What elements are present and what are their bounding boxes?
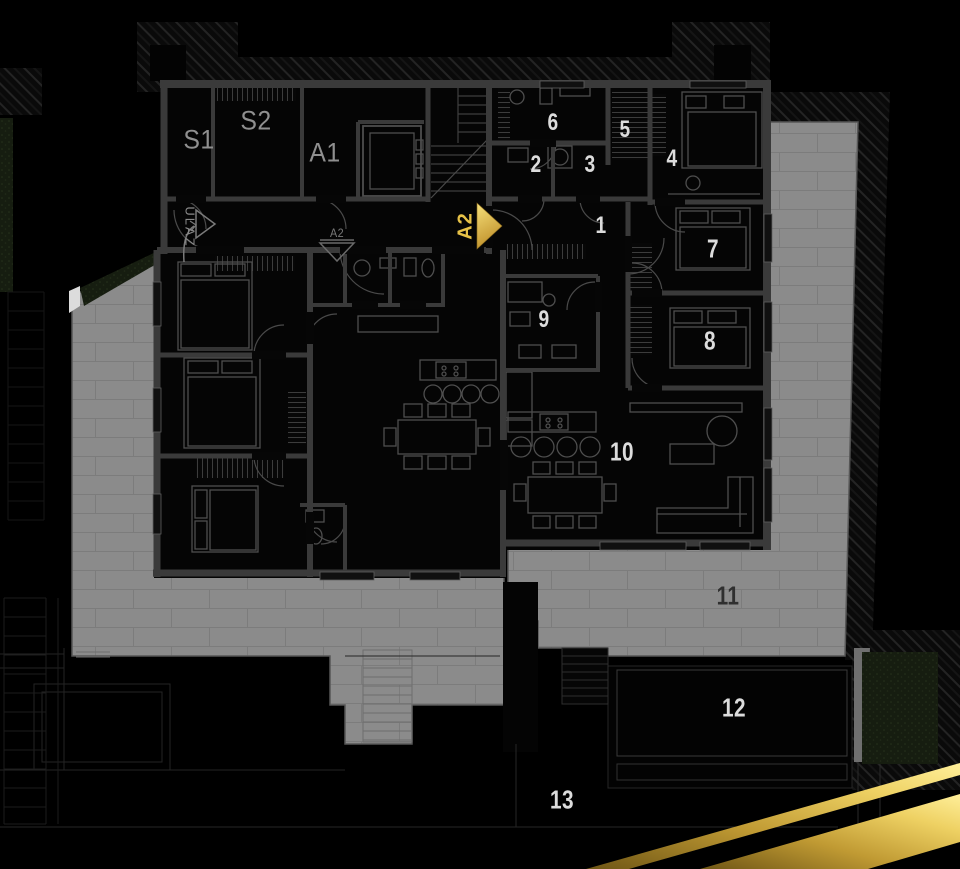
room-number-6: 6 <box>547 109 558 137</box>
greenery-box <box>862 652 938 764</box>
room-number-10: 10 <box>610 437 634 468</box>
room-number-5: 5 <box>619 116 630 144</box>
room-number-11: 11 <box>717 581 740 612</box>
room-number-2: 2 <box>530 151 541 179</box>
terrace-cut <box>503 582 538 752</box>
room-number-4: 4 <box>666 145 677 173</box>
room-number-7: 7 <box>707 234 719 265</box>
entrance-label: ULAZ <box>183 206 198 247</box>
storage-label-s2: S2 <box>240 106 271 137</box>
room-number-3: 3 <box>584 151 595 179</box>
floor-plan-page: S1 S2 A1 ULAZ A2 A2 1 2 3 4 5 6 7 8 9 10… <box>0 0 960 869</box>
storage-label-s1: S1 <box>183 125 214 156</box>
unit-label-a1: A1 <box>309 138 340 169</box>
unit-a2-marker-label[interactable]: A2 <box>455 212 478 240</box>
room-number-12: 12 <box>722 693 746 724</box>
room-number-13: 13 <box>550 785 574 816</box>
room-number-9: 9 <box>538 306 549 334</box>
floor-plan-drawing <box>0 0 960 869</box>
room-number-8: 8 <box>704 326 716 357</box>
section-marker-label: A2 <box>330 226 344 240</box>
room-number-1: 1 <box>595 212 606 240</box>
